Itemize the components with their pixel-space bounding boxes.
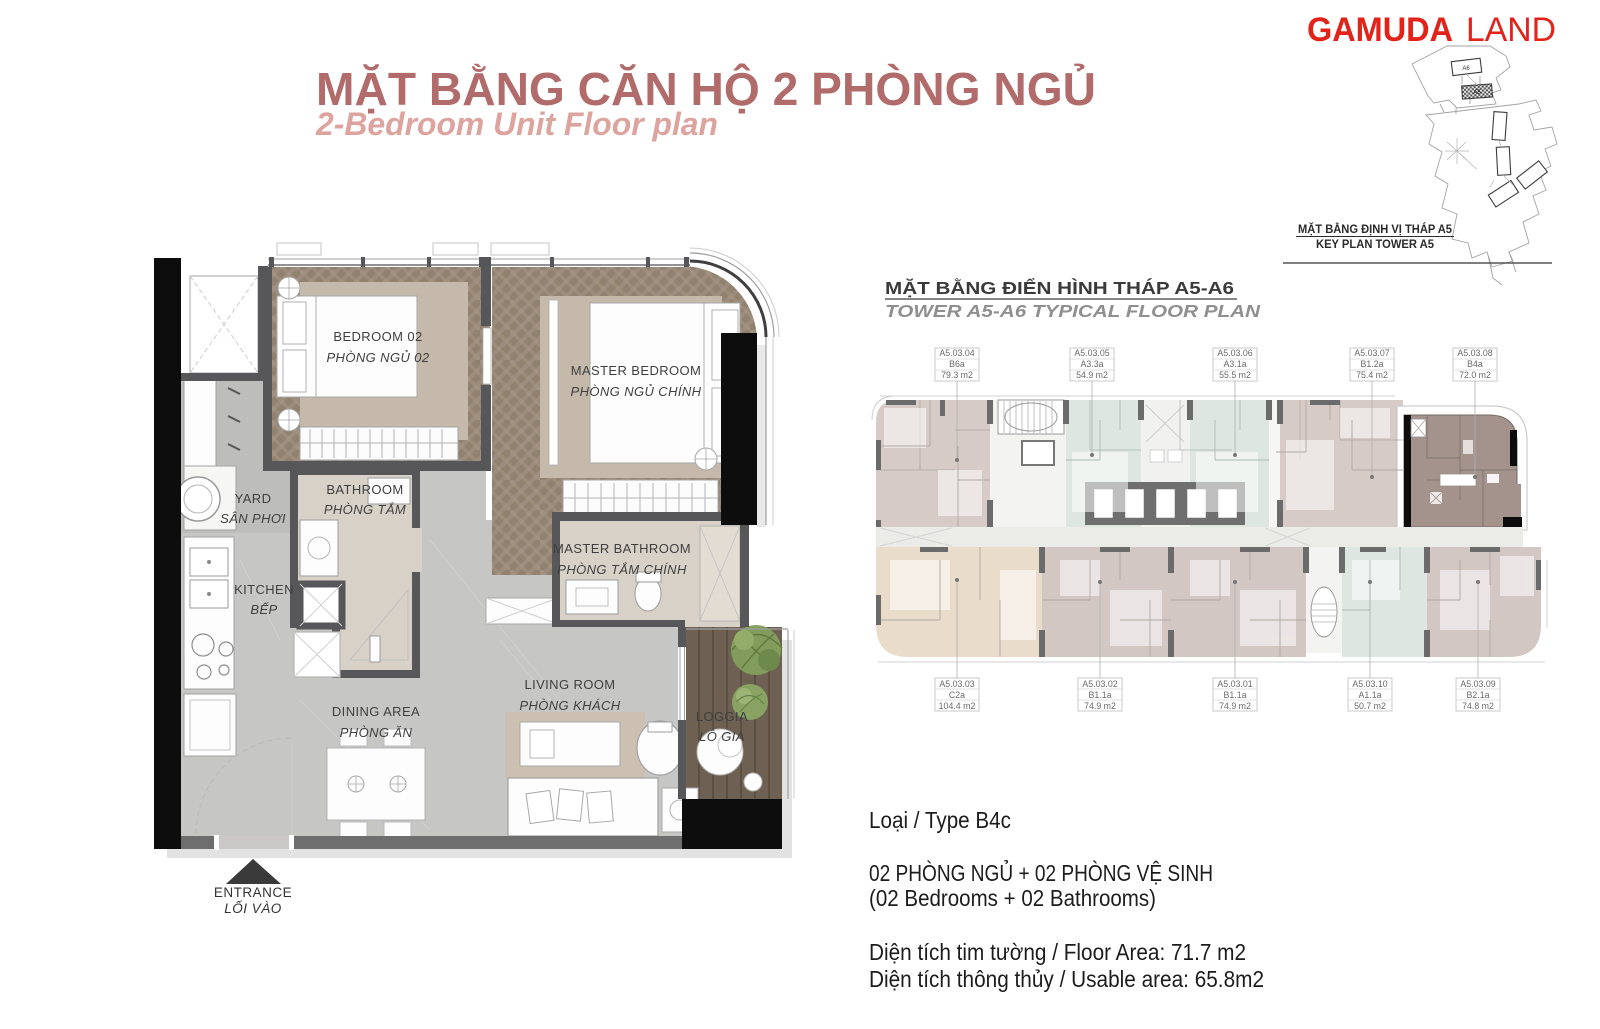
svg-text:B2.1a: B2.1a: [1467, 690, 1490, 700]
svg-text:B1.2a: B1.2a: [1361, 359, 1384, 369]
svg-text:A3.3a: A3.3a: [1081, 359, 1104, 369]
svg-text:DINING AREA: DINING AREA: [332, 704, 420, 719]
svg-text:74.9 m2: 74.9 m2: [1219, 701, 1251, 711]
svg-text:74.8 m2: 74.8 m2: [1462, 701, 1494, 711]
svg-text:TOWER A5-A6 TYPICAL FLOOR PLAN: TOWER A5-A6 TYPICAL FLOOR PLAN: [885, 301, 1260, 321]
svg-text:A1.1a: A1.1a: [1359, 690, 1382, 700]
svg-text:MẶT BẰNG ĐIỂN HÌNH THÁP A5-A6: MẶT BẰNG ĐIỂN HÌNH THÁP A5-A6: [885, 277, 1234, 298]
svg-text:74.9 m2: 74.9 m2: [1084, 701, 1116, 711]
svg-text:KEY PLAN TOWER A5: KEY PLAN TOWER A5: [1316, 237, 1434, 251]
svg-text:Loại / Type B4c: Loại / Type B4c: [869, 807, 1011, 833]
svg-text:PHÒNG TẮM CHÍNH: PHÒNG TẮM CHÍNH: [557, 562, 687, 577]
svg-text:54.9 m2: 54.9 m2: [1076, 370, 1108, 380]
svg-text:KITCHEN: KITCHEN: [234, 582, 294, 597]
svg-text:A5: A5: [1473, 90, 1481, 96]
svg-text:LAND: LAND: [1466, 11, 1556, 49]
svg-text:104.4 m2: 104.4 m2: [939, 701, 976, 711]
svg-text:BẾP: BẾP: [250, 602, 277, 617]
svg-text:BEDROOM 02: BEDROOM 02: [333, 329, 422, 344]
svg-text:A6: A6: [1462, 66, 1470, 72]
svg-text:A5.03.02: A5.03.02: [1082, 679, 1117, 689]
svg-text:GAMUDA: GAMUDA: [1307, 11, 1453, 49]
svg-text:SÂN PHƠI: SÂN PHƠI: [220, 511, 286, 526]
svg-text:A5.03.08: A5.03.08: [1457, 348, 1492, 358]
svg-text:Diện tích tim tường / Floor Ar: Diện tích tim tường / Floor Area: 71.7 m…: [869, 939, 1246, 965]
svg-text:02 PHÒNG NGỦ + 02 PHÒNG VỆ SIN: 02 PHÒNG NGỦ + 02 PHÒNG VỆ SINH: [869, 858, 1213, 886]
svg-text:2-Bedroom Unit Floor plan: 2-Bedroom Unit Floor plan: [315, 106, 718, 142]
svg-text:LÔ GIA: LÔ GIA: [699, 729, 745, 744]
svg-text:A5.03.06: A5.03.06: [1217, 348, 1252, 358]
svg-text:ENTRANCE: ENTRANCE: [214, 885, 292, 900]
svg-text:MASTER BEDROOM: MASTER BEDROOM: [571, 363, 702, 378]
svg-text:B1.1a: B1.1a: [1089, 690, 1112, 700]
svg-text:A5.03.05: A5.03.05: [1074, 348, 1109, 358]
svg-text:PHÒNG NGỦ CHÍNH: PHÒNG NGỦ CHÍNH: [571, 384, 702, 399]
svg-text:Diện tích thông thủy / Usable: Diện tích thông thủy / Usable area: 65.8…: [869, 966, 1264, 992]
svg-text:A5.03.04: A5.03.04: [939, 348, 974, 358]
svg-text:(02 Bedrooms + 02 Bathrooms): (02 Bedrooms + 02 Bathrooms): [869, 885, 1156, 911]
svg-text:B1.1a: B1.1a: [1224, 690, 1247, 700]
svg-text:PHÒNG TẮM: PHÒNG TẮM: [324, 502, 406, 517]
svg-text:A5.03.07: A5.03.07: [1354, 348, 1389, 358]
svg-text:50.7 m2: 50.7 m2: [1354, 701, 1386, 711]
svg-text:MẶT BẰNG ĐỊNH VỊ THÁP A5: MẶT BẰNG ĐỊNH VỊ THÁP A5: [1298, 221, 1452, 236]
svg-text:PHÒNG ĂN: PHÒNG ĂN: [340, 725, 413, 740]
svg-text:A5.03.01: A5.03.01: [1217, 679, 1252, 689]
svg-text:BATHROOM: BATHROOM: [326, 482, 403, 497]
svg-text:75.4 m2: 75.4 m2: [1356, 370, 1388, 380]
svg-text:PHÒNG NGỦ 02: PHÒNG NGỦ 02: [326, 350, 429, 365]
svg-text:A3.1a: A3.1a: [1224, 359, 1247, 369]
svg-text:LOGGIA: LOGGIA: [696, 709, 748, 724]
svg-text:55.5 m2: 55.5 m2: [1219, 370, 1251, 380]
svg-text:B6a: B6a: [949, 359, 965, 369]
svg-text:B4a: B4a: [1467, 359, 1483, 369]
svg-text:72.0 m2: 72.0 m2: [1459, 370, 1491, 380]
svg-text:A5.03.03: A5.03.03: [939, 679, 974, 689]
svg-text:A5.03.10: A5.03.10: [1352, 679, 1387, 689]
svg-text:LIVING ROOM: LIVING ROOM: [524, 677, 615, 692]
svg-text:YARD: YARD: [235, 491, 272, 506]
svg-text:MASTER BATHROOM: MASTER BATHROOM: [553, 541, 691, 556]
svg-text:PHÒNG KHÁCH: PHÒNG KHÁCH: [519, 698, 620, 713]
svg-text:LỐI VÀO: LỐI VÀO: [224, 901, 282, 916]
svg-text:C2a: C2a: [949, 690, 965, 700]
svg-text:79.3 m2: 79.3 m2: [941, 370, 973, 380]
svg-text:A5.03.09: A5.03.09: [1460, 679, 1495, 689]
